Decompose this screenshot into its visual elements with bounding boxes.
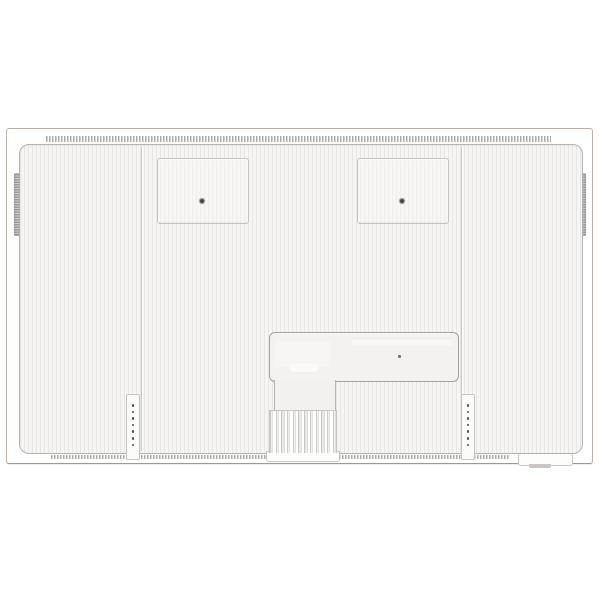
- speaker-hole: [467, 417, 470, 420]
- heatsink-fin: [321, 411, 324, 453]
- vesa-mount-cover-right: [357, 158, 449, 224]
- heatsink-fins: [269, 410, 337, 453]
- panel-seam-left: [141, 147, 142, 451]
- speaker-hole: [132, 411, 135, 414]
- heatsink-fin: [276, 411, 279, 453]
- tv-back: [6, 128, 593, 464]
- io-label-sticker: [289, 363, 319, 372]
- speaker-hole: [132, 437, 135, 440]
- product-photo-canvas: [0, 0, 600, 600]
- io-slot: [351, 338, 453, 346]
- heatsink-fin: [304, 411, 307, 453]
- heatsink-fin: [327, 411, 330, 453]
- speaker-hole: [467, 404, 470, 407]
- heatsink-fin: [316, 411, 319, 453]
- heatsink-fin: [270, 411, 273, 453]
- heatsink-fin: [293, 411, 296, 453]
- speaker-hole: [132, 444, 135, 447]
- speaker-hole: [467, 444, 470, 447]
- vesa-screw-icon: [200, 199, 204, 203]
- power-connector-tab: [529, 464, 551, 468]
- heatsink-fin: [333, 411, 336, 453]
- vesa-screw-icon: [400, 199, 404, 203]
- speaker-hole-strip-left: [126, 394, 140, 460]
- speaker-hole-strip-right: [461, 394, 475, 460]
- heatsink-fin: [310, 411, 313, 453]
- heatsink-fin: [298, 411, 301, 453]
- speaker-hole: [132, 424, 135, 427]
- speaker-hole: [132, 417, 135, 420]
- io-screw-dot: [398, 355, 401, 358]
- rear-panel: [19, 144, 583, 454]
- io-compartment-cover: [269, 332, 459, 382]
- heatsink-fin: [281, 411, 284, 453]
- speaker-hole: [467, 411, 470, 414]
- heatsink-fin: [287, 411, 290, 453]
- top-vent-grille: [46, 136, 551, 142]
- speaker-hole: [467, 437, 470, 440]
- speaker-hole: [467, 424, 470, 427]
- speaker-hole: [467, 430, 470, 433]
- speaker-hole: [132, 430, 135, 433]
- vesa-mount-cover-left: [157, 158, 249, 224]
- speaker-hole: [132, 404, 135, 407]
